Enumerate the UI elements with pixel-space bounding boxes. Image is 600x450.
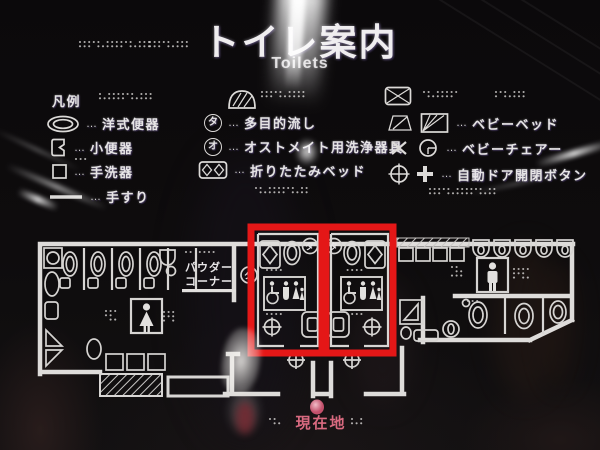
svg-text:タ: タ: [329, 242, 339, 252]
svg-text:現在地: 現在地: [295, 414, 346, 432]
parent-child-icon: [370, 281, 382, 300]
door-button-map-icon: [387, 162, 411, 186]
circled-o-icon: オ: [204, 138, 222, 156]
braille-dots: [75, 41, 529, 424]
accessible-sign-panel: [341, 277, 382, 310]
svg-text:パウダー: パウダー: [185, 260, 233, 274]
circled-ta-icon: タ: [204, 114, 222, 132]
door-button-symbol: [363, 318, 382, 337]
parent-child-icon: [293, 281, 305, 300]
entrance-hatch: [100, 374, 162, 396]
hand-washer-icon: [51, 163, 68, 180]
handrail-icon: [48, 192, 84, 202]
legend-item-baby-bed: … ベビーベッド: [386, 112, 559, 134]
legend-marker-crossed-bed: [384, 86, 412, 106]
western-toilet-icon: [46, 115, 80, 133]
toilet-symbols: [463, 300, 567, 329]
folding-bed-icon: [198, 160, 228, 180]
legend-item-hand-washer: … 手洗器: [51, 162, 134, 181]
mens-entry-hatch: [397, 238, 469, 247]
right-accessible-room: タ: [327, 239, 386, 338]
baby-bed-map-icon: [386, 113, 414, 133]
crossed-bed-icon: [384, 86, 412, 106]
powder-corner-label: パウダー コーナー: [182, 260, 236, 292]
ostomate-icon: [360, 281, 366, 300]
legend-item-multi-sink: タ … 多目的流し: [204, 113, 317, 132]
legend-item-urinal: … 小便器: [50, 138, 134, 157]
baby-chair-icon: [418, 138, 440, 158]
accessible-sign-panel: [264, 277, 305, 310]
wheelchair-icon: [344, 281, 356, 303]
legend-item-folding-bed: … 折りたたみベッド: [198, 160, 366, 180]
baby-chair-map-icon: [389, 139, 409, 157]
woman-icon: [131, 299, 162, 333]
door-button-icon: [415, 164, 435, 184]
legend-item-handrail: … 手すり: [48, 187, 150, 206]
legend-item-ostomate: オ … オストメイト用洗浄器具: [204, 137, 404, 156]
sign-title-english: Toilets: [0, 55, 600, 73]
current-location: 現在地: [295, 400, 346, 433]
ostomate-icon: [283, 281, 289, 300]
legend-heading: 凡例: [52, 91, 81, 110]
wheelchair-icon: [267, 281, 279, 303]
current-location-dot: [310, 400, 324, 415]
legend-item-western-toilet: … 洋式便器: [46, 114, 160, 133]
legend-item-door-button: … 自動ドア開閉ボタン: [387, 162, 588, 186]
svg-text:タ: タ: [305, 242, 315, 252]
man-icon: [477, 258, 508, 292]
legend-marker-dome: [226, 85, 258, 111]
toilet-symbols: [60, 250, 176, 288]
baby-bed-icon: [420, 112, 450, 134]
urinal-icon: [50, 138, 68, 157]
left-accessible-room: タ: [260, 239, 323, 338]
sink-counter: [400, 300, 459, 341]
svg-text:コーナー: コーナー: [185, 275, 233, 288]
hand-washer-symbols: [399, 248, 464, 261]
entrance-frame: [168, 377, 228, 396]
womens-area: パウダー コーナー タ: [44, 248, 257, 370]
hatched-dome-icon: [226, 85, 258, 111]
door-button-symbol: [263, 318, 282, 337]
legend-item-baby-chair: … ベビーチェアー: [389, 138, 563, 158]
